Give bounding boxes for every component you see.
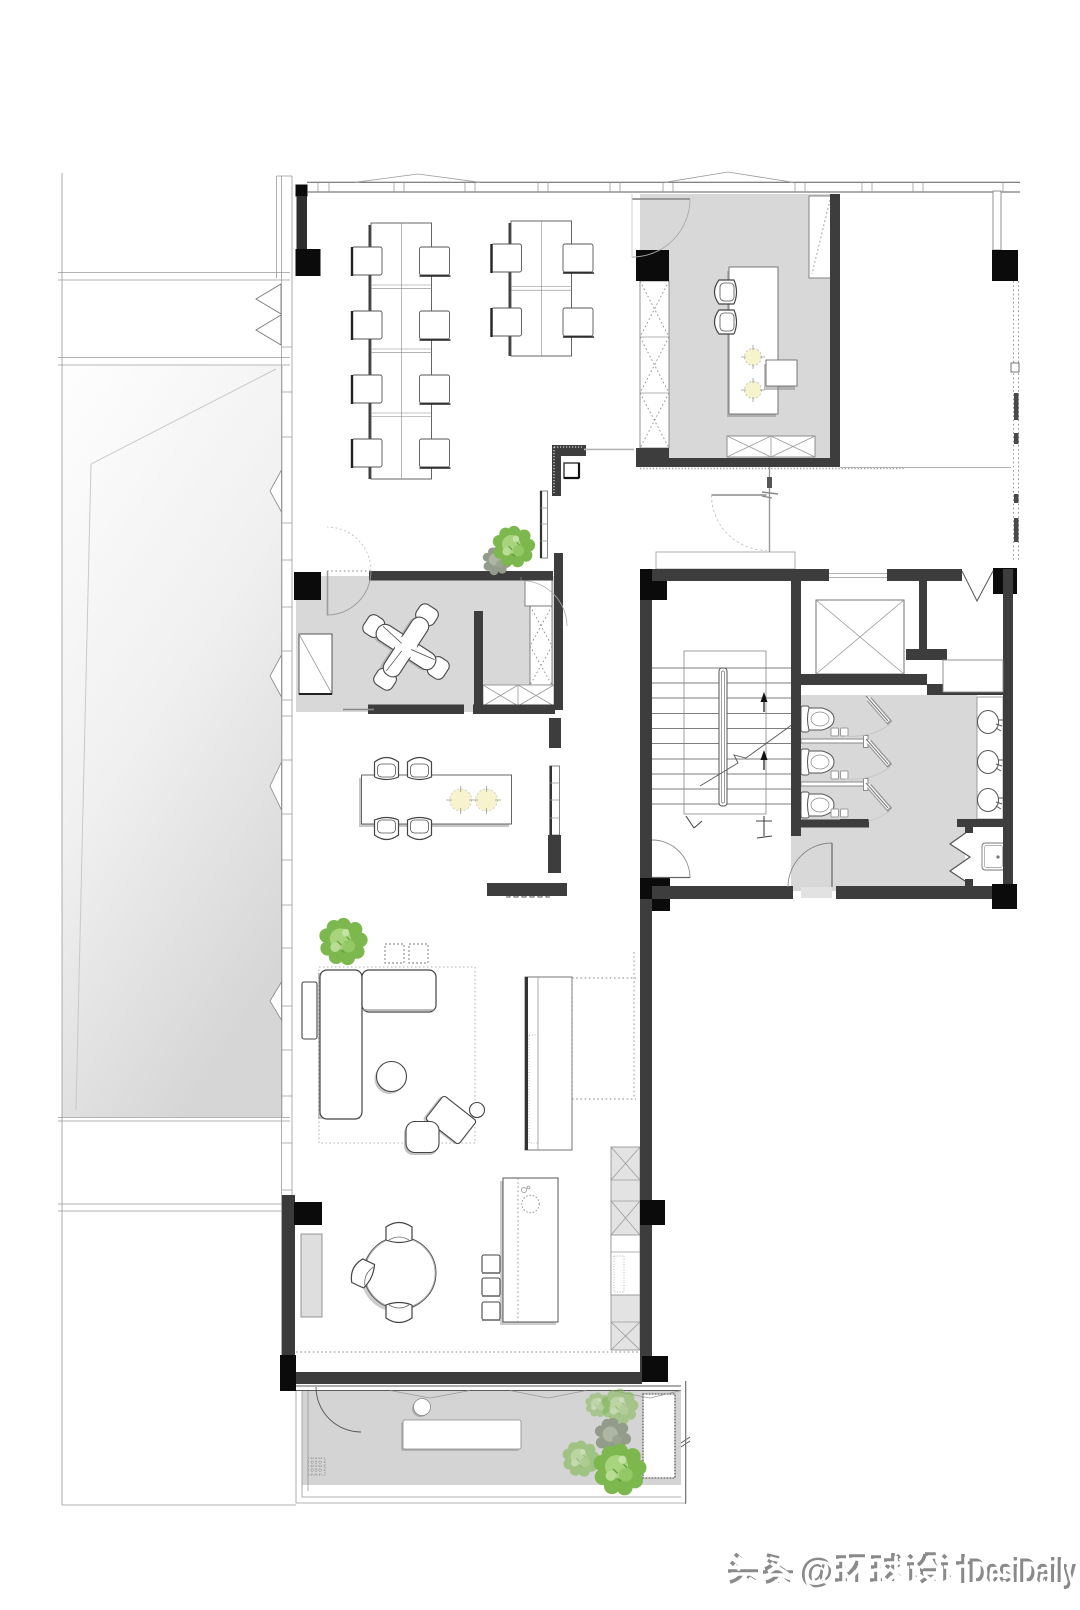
svg-text:@: @ (803, 1555, 836, 1593)
svg-text:DesiDaily: DesiDaily (971, 1555, 1079, 1593)
